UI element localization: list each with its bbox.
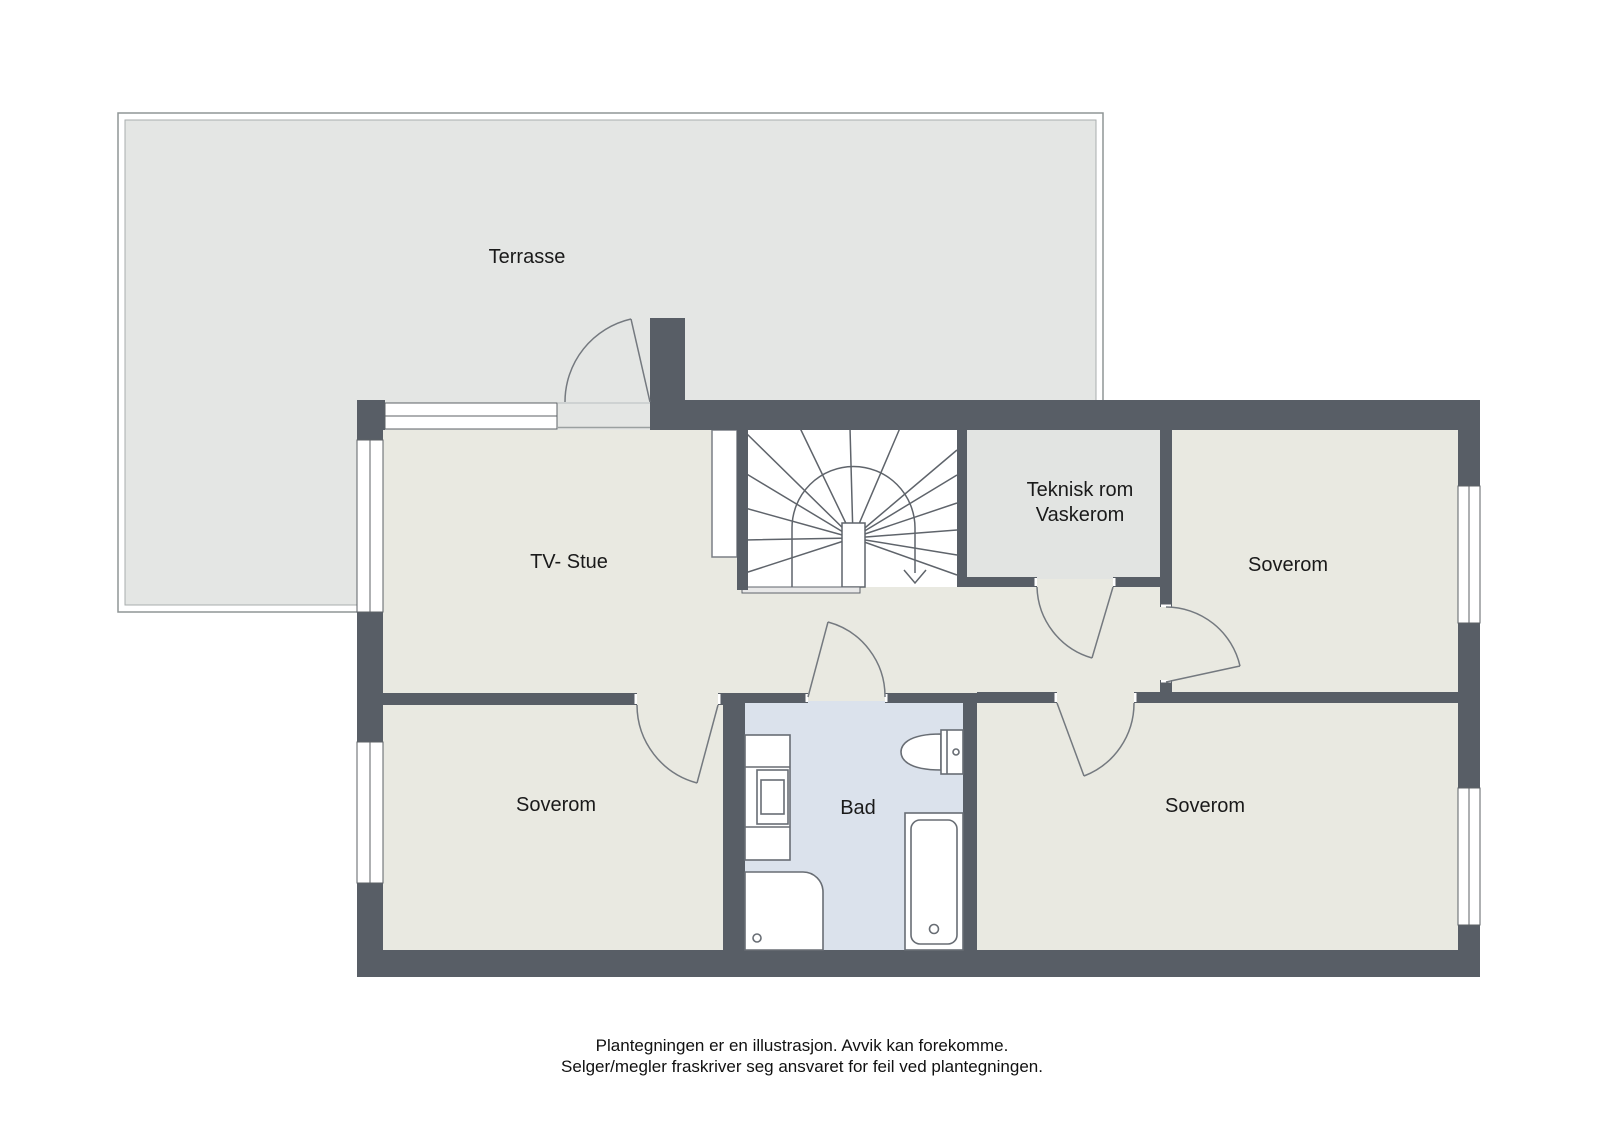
wall-stair-right (957, 428, 967, 587)
terrace-label: Terrasse (489, 246, 566, 268)
wall-bathroom-right (963, 703, 977, 950)
disclaimer: Plantegningen er en illustrasjon. Avvik … (561, 1036, 1043, 1076)
wall-left-2 (357, 612, 383, 742)
technical-room-label-line1: Teknisk rom (1027, 479, 1134, 501)
wall-right-1 (1458, 400, 1480, 486)
bathtub (905, 813, 963, 950)
vanity-cabinet (745, 735, 790, 860)
tvstue-label: TV- Stue (530, 551, 608, 573)
window-tvstue-top (385, 403, 557, 429)
window-bedroom-left (357, 742, 383, 883)
wall-top (650, 400, 1480, 430)
bedroom-bottom-left-label: Soverom (516, 794, 596, 816)
wall-bathroom-top-left (745, 693, 808, 703)
bedroom-top-right-label: Soverom (1248, 554, 1328, 576)
stair-sill (742, 587, 860, 593)
wall-hall-bedroom-left (977, 692, 1057, 703)
technical-room-label-line2: Vaskerom (1036, 504, 1125, 526)
window-bedroom-bottomright (1458, 788, 1480, 925)
wall-technical-bottom-left (957, 577, 1037, 587)
window-bedroom-topright (1458, 486, 1480, 623)
wall-bottom (357, 950, 1480, 977)
disclaimer-line-2: Selger/megler fraskriver seg ansvaret fo… (561, 1057, 1043, 1076)
wall-stair-left (737, 428, 748, 590)
wall-technical-bottom-right (1113, 577, 1172, 587)
wall-bathroom-top-right (885, 693, 977, 703)
shower (745, 872, 823, 950)
window-tvstue-left (357, 440, 383, 612)
wall-left-1 (357, 400, 383, 440)
wall-terrace-stub (650, 318, 685, 402)
wall-bathroom-left (723, 693, 745, 950)
stair-newel-post (842, 523, 865, 587)
bathroom-label: Bad (840, 797, 876, 819)
bedroom-bottom-right-label: Soverom (1165, 795, 1245, 817)
floor-plan: Terrasse (0, 0, 1600, 1131)
disclaimer-line-1: Plantegningen er en illustrasjon. Avvik … (596, 1036, 1009, 1055)
wall-tvstue-bedroom (383, 693, 637, 705)
wall-hall-bedroom-right (1134, 692, 1458, 703)
stair-railing (712, 430, 737, 557)
wall-right-2 (1458, 623, 1480, 788)
